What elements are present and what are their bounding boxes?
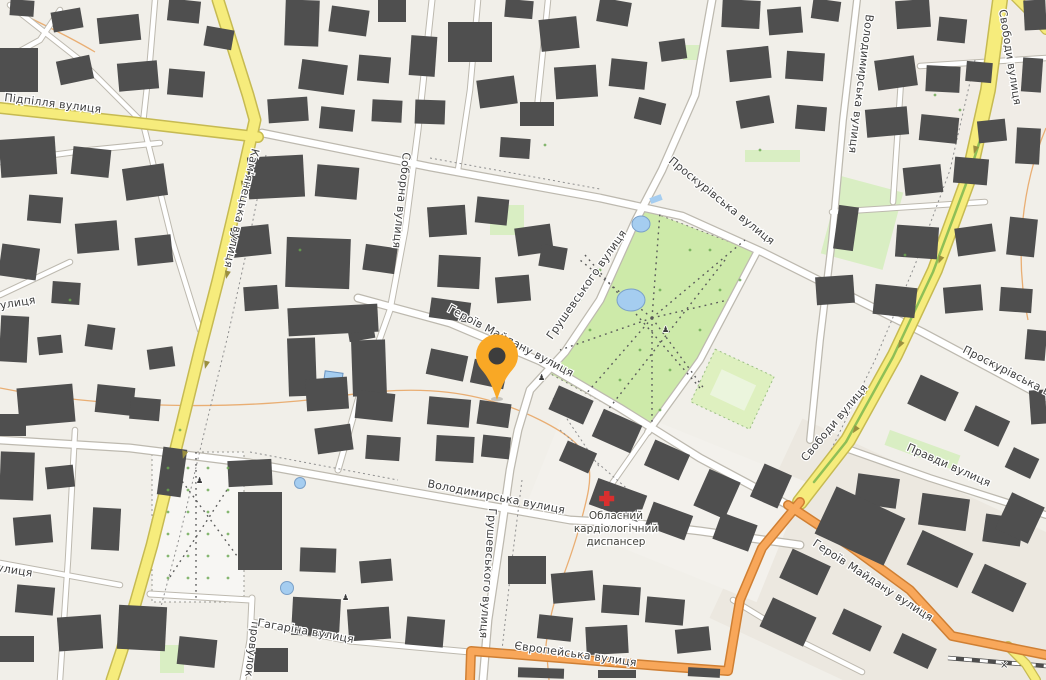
building bbox=[726, 46, 771, 82]
location-marker-pin[interactable] bbox=[476, 334, 518, 401]
building bbox=[785, 51, 825, 82]
building bbox=[56, 55, 94, 86]
building bbox=[0, 636, 34, 662]
building bbox=[551, 570, 595, 604]
building bbox=[865, 106, 909, 138]
building bbox=[427, 396, 471, 428]
building bbox=[15, 584, 55, 615]
building bbox=[645, 596, 685, 625]
tree-dot bbox=[934, 94, 937, 97]
building bbox=[475, 196, 510, 225]
building bbox=[688, 667, 720, 678]
tree-dot bbox=[167, 489, 170, 492]
building bbox=[964, 405, 1010, 446]
building bbox=[508, 556, 546, 584]
building bbox=[405, 616, 445, 647]
building bbox=[943, 284, 983, 313]
building bbox=[117, 605, 167, 651]
tree-dot bbox=[544, 144, 547, 147]
monument-icon: ♟ bbox=[342, 593, 349, 602]
tree-dot bbox=[227, 577, 230, 580]
building bbox=[319, 106, 355, 131]
building bbox=[315, 164, 360, 200]
building bbox=[937, 17, 967, 44]
tree-dot bbox=[167, 555, 170, 558]
building bbox=[1023, 0, 1046, 31]
building bbox=[537, 614, 573, 641]
building bbox=[538, 244, 567, 270]
building bbox=[167, 68, 205, 97]
marker-hole bbox=[489, 348, 506, 365]
building bbox=[481, 435, 511, 460]
tree-dot bbox=[719, 289, 722, 292]
tree-dot bbox=[227, 555, 230, 558]
fountain bbox=[295, 478, 306, 489]
building bbox=[427, 205, 467, 238]
building bbox=[1015, 127, 1041, 164]
building bbox=[365, 435, 401, 461]
tree-dot bbox=[619, 379, 622, 382]
building bbox=[314, 424, 353, 455]
building bbox=[538, 16, 579, 52]
hospital-name-line2: кардіологічний bbox=[574, 523, 658, 535]
building bbox=[355, 390, 396, 422]
tree-dot bbox=[187, 489, 190, 492]
monument-icon: ♟ bbox=[196, 476, 203, 485]
tree-dot bbox=[167, 533, 170, 536]
building bbox=[305, 377, 349, 412]
building bbox=[554, 65, 598, 100]
building bbox=[601, 585, 641, 616]
building bbox=[167, 0, 201, 24]
building bbox=[357, 55, 391, 84]
building bbox=[499, 137, 530, 159]
building bbox=[965, 61, 993, 83]
tree-dot bbox=[699, 329, 702, 332]
building bbox=[476, 400, 511, 428]
building bbox=[0, 451, 35, 500]
tree-dot bbox=[227, 511, 230, 514]
building bbox=[147, 346, 176, 369]
building bbox=[1006, 217, 1038, 258]
building bbox=[675, 626, 711, 653]
building bbox=[57, 615, 103, 652]
building bbox=[328, 5, 369, 36]
building bbox=[495, 275, 531, 304]
tree-dot bbox=[207, 533, 210, 536]
building bbox=[919, 114, 960, 144]
building bbox=[767, 7, 803, 36]
building bbox=[0, 136, 57, 178]
building bbox=[953, 157, 989, 186]
building bbox=[520, 102, 554, 126]
hospital-name-line1: Обласний bbox=[589, 510, 643, 522]
building bbox=[177, 636, 218, 668]
monument-icon: ♟ bbox=[538, 373, 545, 382]
tree-dot bbox=[207, 555, 210, 558]
building bbox=[634, 97, 666, 125]
building bbox=[895, 225, 939, 260]
map-svg[interactable]: Обласний кардіологічний диспансер ♟ ♟ ♟ … bbox=[0, 0, 1046, 680]
building bbox=[27, 195, 63, 224]
tree-dot bbox=[69, 299, 72, 302]
building bbox=[736, 95, 774, 128]
building bbox=[45, 465, 75, 490]
building bbox=[117, 60, 159, 91]
building bbox=[1021, 57, 1043, 92]
building bbox=[873, 284, 918, 318]
building bbox=[977, 119, 1007, 144]
building bbox=[907, 375, 959, 422]
building bbox=[85, 324, 116, 350]
building bbox=[129, 397, 161, 422]
building bbox=[518, 667, 564, 679]
building bbox=[51, 281, 80, 305]
tree-dot bbox=[709, 249, 712, 252]
building bbox=[351, 339, 387, 396]
building bbox=[609, 58, 648, 90]
building bbox=[97, 14, 141, 44]
building bbox=[135, 234, 174, 266]
building bbox=[0, 48, 38, 92]
building bbox=[596, 0, 632, 27]
tree-dot bbox=[207, 511, 210, 514]
building bbox=[925, 65, 960, 93]
building bbox=[895, 0, 931, 29]
building bbox=[598, 670, 636, 678]
tree-dot bbox=[689, 249, 692, 252]
building bbox=[298, 59, 348, 95]
building bbox=[0, 315, 29, 362]
building bbox=[378, 0, 406, 22]
building bbox=[243, 285, 279, 311]
building bbox=[227, 459, 272, 487]
building bbox=[999, 287, 1033, 313]
building bbox=[287, 304, 378, 337]
building bbox=[874, 55, 918, 90]
building bbox=[13, 514, 53, 545]
building bbox=[811, 0, 842, 22]
building bbox=[448, 22, 492, 62]
building bbox=[71, 146, 112, 178]
building bbox=[1005, 447, 1040, 479]
building bbox=[284, 0, 320, 47]
tree-dot bbox=[299, 249, 302, 252]
building bbox=[903, 164, 944, 196]
tree-dot bbox=[187, 577, 190, 580]
tree-dot bbox=[669, 369, 672, 372]
railway-crossing-icon: × bbox=[1000, 660, 1008, 671]
tree-dot bbox=[659, 409, 662, 412]
building bbox=[371, 99, 402, 123]
tree-dot bbox=[207, 489, 210, 492]
tree-dot bbox=[167, 467, 170, 470]
building bbox=[954, 223, 996, 256]
tree-dot bbox=[759, 149, 762, 152]
tree-dot bbox=[227, 467, 230, 470]
tree-dot bbox=[207, 467, 210, 470]
tree-dot bbox=[739, 279, 742, 282]
building bbox=[659, 38, 688, 61]
building bbox=[504, 0, 533, 19]
tree-dot bbox=[959, 109, 962, 112]
map-canvas[interactable]: Обласний кардіологічний диспансер ♟ ♟ ♟ … bbox=[0, 0, 1046, 680]
building bbox=[476, 75, 518, 108]
tree-dot bbox=[659, 289, 662, 292]
building bbox=[95, 384, 136, 416]
building bbox=[795, 105, 827, 132]
building bbox=[0, 414, 26, 436]
tree-dot bbox=[589, 329, 592, 332]
building bbox=[238, 492, 282, 570]
building bbox=[815, 275, 855, 306]
park-pond bbox=[617, 289, 645, 311]
building bbox=[409, 35, 438, 77]
building bbox=[918, 493, 970, 531]
building bbox=[37, 335, 63, 355]
tree-dot bbox=[167, 577, 170, 580]
tree-dot bbox=[187, 555, 190, 558]
monument-icon: ♟ bbox=[662, 325, 669, 334]
building bbox=[300, 547, 337, 572]
building bbox=[9, 0, 34, 17]
building bbox=[435, 435, 474, 463]
tree-dot bbox=[227, 489, 230, 492]
tree-dot bbox=[904, 254, 907, 257]
marker-body bbox=[476, 334, 518, 400]
tree-dot bbox=[167, 511, 170, 514]
building bbox=[437, 255, 481, 289]
building bbox=[91, 507, 121, 550]
hospital-name-line3: диспансер bbox=[587, 536, 646, 548]
building bbox=[0, 244, 40, 281]
building bbox=[75, 220, 119, 254]
building bbox=[415, 99, 446, 124]
building bbox=[267, 97, 309, 124]
building bbox=[426, 348, 469, 381]
tree-dot bbox=[187, 511, 190, 514]
tree-dot bbox=[187, 533, 190, 536]
park-small-pond bbox=[632, 216, 650, 232]
tree-dot bbox=[639, 349, 642, 352]
building bbox=[362, 244, 397, 274]
fountain bbox=[281, 582, 294, 595]
building bbox=[122, 163, 168, 201]
building bbox=[359, 559, 393, 584]
tree-dot bbox=[227, 533, 230, 536]
building bbox=[1025, 329, 1046, 361]
building bbox=[285, 237, 351, 289]
building bbox=[721, 0, 760, 29]
tree-dot bbox=[179, 429, 182, 432]
tree-dot bbox=[207, 577, 210, 580]
street-label-partial-left-middle: вулиця bbox=[0, 293, 36, 312]
tree-dot bbox=[187, 467, 190, 470]
